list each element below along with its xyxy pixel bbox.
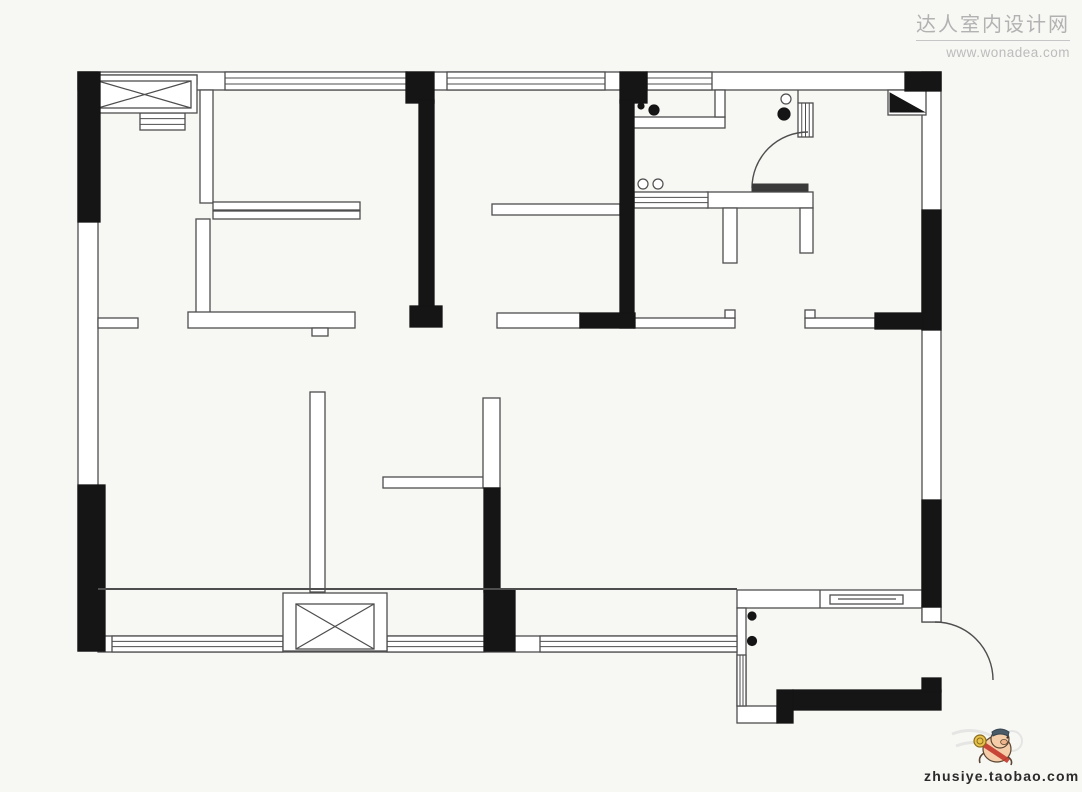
floor-plan-drawing — [0, 0, 1082, 792]
stove-burner-large — [649, 105, 659, 115]
bathroom-fixture-large — [778, 108, 790, 120]
shop-url: zhusiye.taobao.com — [924, 768, 1064, 784]
window-bottom-1 — [112, 636, 283, 652]
watermark: 达人室内设计网 www.wonadea.com — [916, 8, 1070, 60]
window-bottom-2 — [387, 636, 485, 652]
watermark-site-name: 达人室内设计网 — [916, 8, 1070, 41]
wall-black-right-upper — [922, 210, 941, 330]
wall-black-bedroom2-foot — [580, 313, 635, 328]
wall-black-living-divider-foot — [484, 590, 515, 651]
pier-top-1 — [406, 72, 434, 103]
shop-logo: zhusiye.taobao.com — [924, 723, 1064, 784]
bedroom1-wall-vertical — [196, 219, 210, 314]
hallway-wall-top — [492, 204, 620, 215]
stove-burner-small — [638, 103, 644, 109]
kitchen-counter-return — [715, 90, 725, 117]
entry-door-jamb-box — [922, 607, 941, 622]
hallway-wall-lip-2 — [805, 310, 815, 318]
bathroom-fixture-small — [781, 94, 791, 104]
wall-black-bedroom2 — [620, 100, 634, 328]
entry-fixture-1 — [748, 612, 756, 620]
entry-wall-black-corner — [777, 690, 793, 723]
watermark-site-url: www.wonadea.com — [916, 45, 1070, 60]
living-partition-horizontal — [383, 477, 485, 488]
wall-black-bedroom1 — [419, 100, 434, 310]
bathroom-door-leaf — [752, 184, 808, 191]
entry-door-arc — [935, 622, 993, 680]
wall-black-living-divider — [484, 488, 500, 592]
wall-black-left-upper — [78, 72, 100, 222]
hallway-wall-bottom-right — [805, 318, 875, 328]
floor-plan-page: 达人室内设计网 www.wonadea.com zhusiye.taobao.c… — [0, 0, 1082, 792]
window-top-3 — [647, 72, 712, 90]
sink-bowl-left — [638, 179, 648, 189]
window-top-1 — [225, 72, 407, 90]
living-partition-vertical — [310, 392, 325, 592]
entry-fixture-2 — [748, 637, 757, 646]
entry-box-bottom-left — [737, 706, 777, 723]
wall-black-hall-right — [875, 313, 923, 329]
bedroom1-partition — [200, 90, 213, 203]
entry-wall-black-step — [922, 678, 941, 692]
window-bottom-3 — [540, 636, 737, 652]
window-entry-left — [737, 655, 746, 706]
wall-black-right-lower — [922, 500, 941, 607]
wardrobe-bar-1 — [213, 202, 360, 210]
wardrobe-bar-2 — [213, 211, 360, 219]
kitchen-pass-grille — [634, 192, 708, 208]
duct-grille — [140, 113, 185, 130]
wall-black-left-lower — [78, 485, 105, 651]
kitchen-counter — [633, 117, 725, 128]
bedroom1-wall-bottom — [188, 312, 355, 328]
entry-wall-black-bottom — [793, 690, 941, 710]
hallway-wall-bottom-left — [634, 318, 735, 328]
bathroom-door-arc — [752, 132, 808, 188]
dining-table-leg-right — [800, 208, 813, 253]
dining-table-leg-left — [723, 208, 737, 263]
living-partition-upper — [483, 398, 500, 488]
sink-bowl-right — [653, 179, 663, 189]
living-wall-stub-left — [98, 318, 138, 328]
hallway-wall-lip-1 — [725, 310, 735, 318]
wall-black-corner-tr — [905, 72, 941, 91]
dining-table-top — [707, 192, 813, 208]
wall-black-bedroom1-foot — [410, 306, 442, 327]
bedroom2-wall-bottom — [497, 313, 580, 328]
pier-top-2 — [620, 72, 647, 103]
pig-mascot-icon — [964, 723, 1024, 767]
bedroom1-wall-notch — [312, 328, 328, 336]
window-top-2 — [447, 72, 605, 90]
